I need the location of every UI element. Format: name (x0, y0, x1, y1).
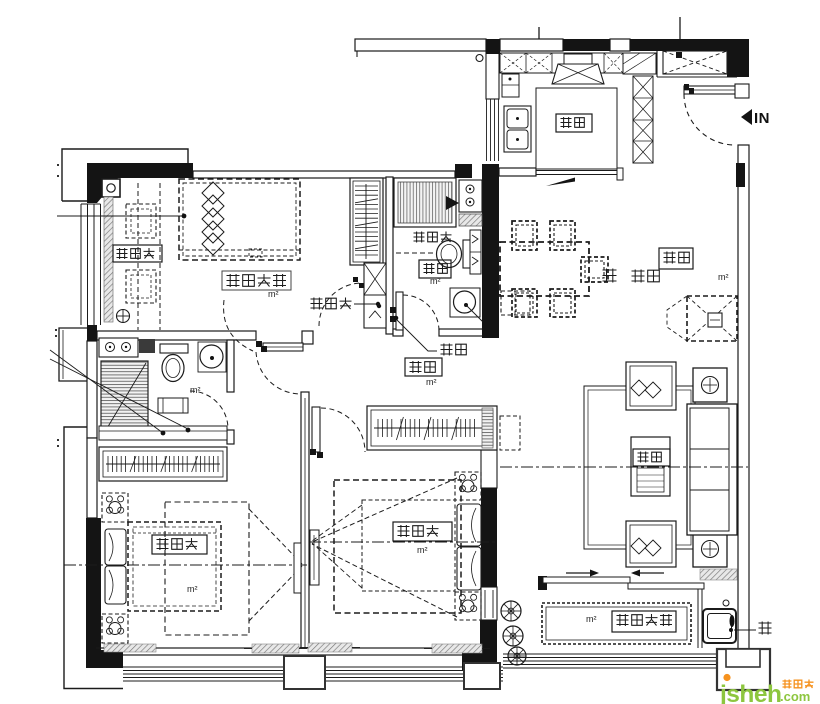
svg-text:IN: IN (754, 110, 770, 127)
svg-text:m²: m² (430, 276, 441, 286)
svg-text:jsheh: jsheh (719, 681, 782, 704)
svg-text:.com: .com (780, 689, 810, 704)
svg-text:m²: m² (718, 272, 729, 282)
svg-text:m²: m² (190, 385, 201, 395)
svg-text:m²: m² (586, 614, 597, 624)
svg-text:m²: m² (417, 545, 428, 555)
svg-text:m²: m² (426, 377, 437, 387)
svg-text:m²: m² (268, 289, 279, 299)
svg-text:m²: m² (187, 584, 198, 594)
